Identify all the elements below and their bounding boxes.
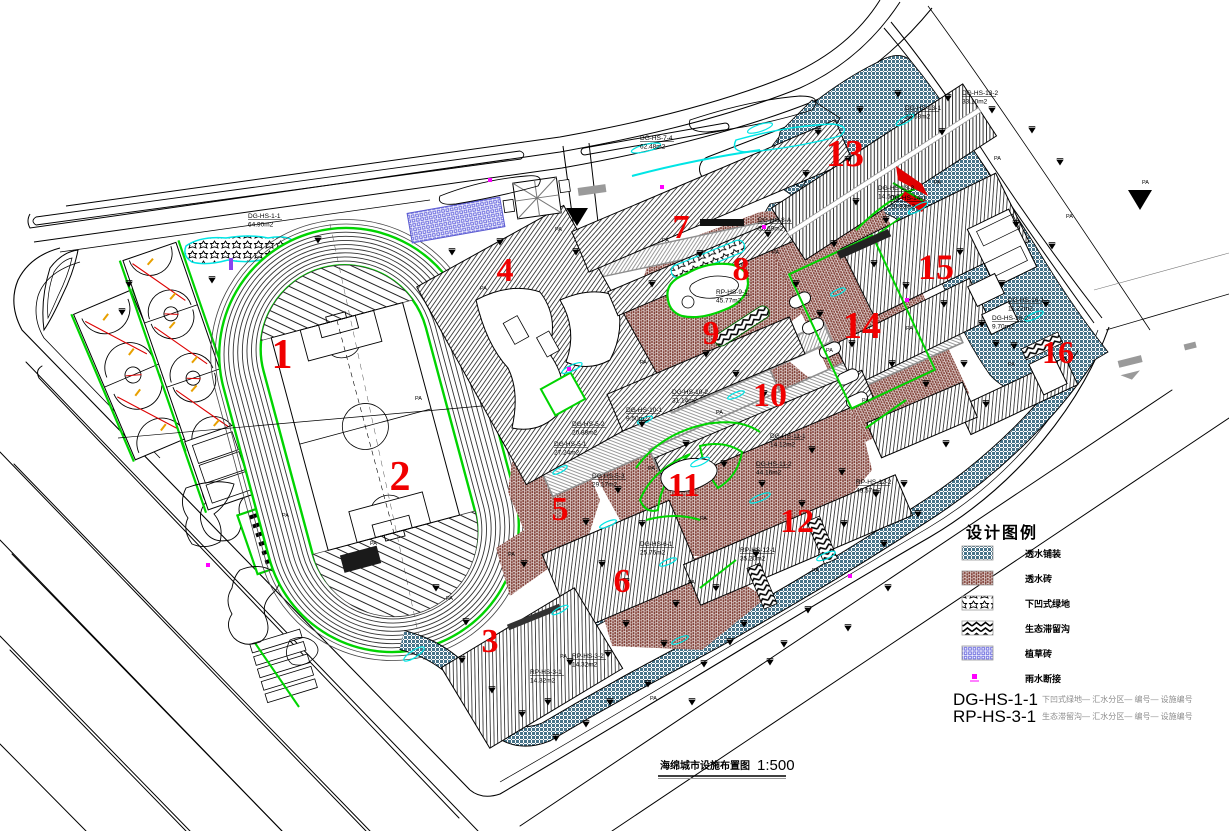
svg-text:9.70m2: 9.70m2 [992, 324, 1014, 331]
svg-text:DG-HS-13-3: DG-HS-13-3 [878, 185, 915, 192]
svg-text:植草砖: 植草砖 [1024, 648, 1052, 659]
svg-text:DG-HS-6-1: DG-HS-6-1 [640, 541, 673, 548]
svg-text:3: 3 [482, 623, 499, 660]
svg-text:8: 8 [733, 251, 750, 288]
svg-text:49.57m2: 49.57m2 [856, 488, 882, 495]
svg-text:PA: PA [716, 410, 723, 416]
svg-text:RP-HS-12-1: RP-HS-12-1 [740, 547, 776, 554]
svg-text:33.69m2: 33.69m2 [758, 226, 784, 233]
svg-text:PA: PA [560, 654, 567, 660]
svg-text:RP-HS-12-2: RP-HS-12-2 [856, 479, 892, 486]
svg-text:PA: PA [662, 238, 669, 244]
svg-text:DG-HS-11-2: DG-HS-11-2 [756, 461, 792, 468]
svg-text:RP-HS-3-1: RP-HS-3-1 [530, 669, 562, 676]
svg-text:29.17m2: 29.17m2 [592, 482, 618, 489]
svg-text:PA: PA [1008, 362, 1015, 368]
svg-text:PA: PA [812, 568, 819, 574]
svg-text:RP-HS-3-2: RP-HS-3-2 [572, 653, 604, 660]
svg-text:PA: PA [826, 348, 833, 354]
svg-text:25.76m2: 25.76m2 [640, 550, 666, 557]
svg-text:14.12m2: 14.12m2 [770, 442, 796, 449]
svg-text:PA: PA [906, 326, 913, 332]
svg-text:32.68m2: 32.68m2 [905, 114, 931, 121]
svg-text:62.48m2: 62.48m2 [640, 144, 666, 151]
svg-text:35.20m2: 35.20m2 [740, 556, 766, 563]
svg-text:PA: PA [700, 516, 707, 522]
svg-text:14.32m2: 14.32m2 [572, 662, 598, 669]
svg-text:27.24m2: 27.24m2 [554, 450, 580, 457]
svg-text:DG-HS-10-1: DG-HS-10-1 [626, 407, 663, 414]
svg-text:透水砖: 透水砖 [1025, 573, 1052, 584]
svg-text:1: 1 [272, 332, 293, 378]
svg-text:DG-HS-8-A: DG-HS-8-A [758, 217, 792, 224]
svg-text:DG-HS-10-2: DG-HS-10-2 [672, 389, 709, 396]
svg-text:DG-HS-16-2: DG-HS-16-2 [992, 315, 1029, 322]
svg-text:PA: PA [1142, 180, 1149, 186]
svg-text:PA: PA [370, 541, 377, 547]
svg-text:PA: PA [508, 552, 515, 558]
svg-text:下凹式绿地: 下凹式绿地 [1025, 598, 1070, 609]
svg-text:11.22m2: 11.22m2 [1008, 306, 1033, 313]
svg-text:PA: PA [1066, 214, 1073, 220]
svg-text:DG-HS-7-4: DG-HS-7-4 [640, 135, 673, 142]
svg-text:PA: PA [640, 360, 647, 366]
svg-text:DG-HS-5-1: DG-HS-5-1 [554, 441, 587, 448]
svg-text:45.77m2: 45.77m2 [716, 298, 742, 305]
svg-text:下凹式绿地— 汇水分区— 编号— 设施编号: 下凹式绿地— 汇水分区— 编号— 设施编号 [1042, 694, 1193, 704]
svg-text:14: 14 [843, 305, 881, 347]
svg-text:雨水断接: 雨水断接 [1025, 673, 1061, 684]
svg-text:33.10m2: 33.10m2 [962, 99, 988, 106]
svg-text:PA: PA [648, 466, 655, 472]
svg-text:DG-HS-16-1: DG-HS-16-1 [1008, 297, 1045, 304]
svg-text:生态滞留沟: 生态滞留沟 [1025, 623, 1070, 634]
svg-text:1:500: 1:500 [757, 757, 795, 774]
svg-text:11: 11 [668, 467, 700, 504]
svg-text:透水铺装: 透水铺装 [1025, 548, 1062, 559]
svg-text:13: 13 [826, 133, 864, 175]
svg-text:DG-HS-13-2: DG-HS-13-2 [962, 90, 999, 97]
svg-text:PA: PA [555, 227, 562, 233]
svg-text:16: 16 [1042, 334, 1074, 370]
svg-text:DG-HS-5-2: DG-HS-5-2 [572, 421, 605, 428]
svg-text:海绵城市设施布置图: 海绵城市设施布置图 [660, 759, 750, 772]
svg-text:DG-HS-5-3: DG-HS-5-3 [592, 473, 625, 480]
svg-text:10: 10 [753, 377, 787, 414]
svg-text:64.90m2: 64.90m2 [248, 222, 274, 229]
svg-text:设计图例: 设计图例 [966, 523, 1038, 542]
svg-text:DG-HS-1-1: DG-HS-1-1 [248, 213, 281, 220]
svg-text:9: 9 [703, 315, 720, 352]
svg-text:44.16m2: 44.16m2 [756, 470, 782, 477]
svg-text:2: 2 [390, 454, 411, 500]
svg-text:PA: PA [650, 696, 657, 702]
svg-text:PA: PA [772, 250, 779, 256]
svg-text:PA: PA [934, 180, 941, 186]
svg-text:14.5m2: 14.5m2 [878, 194, 900, 201]
svg-text:14.32m2: 14.32m2 [530, 678, 556, 685]
svg-text:4: 4 [497, 252, 514, 289]
svg-text:RP-HS-9-1: RP-HS-9-1 [716, 289, 748, 296]
svg-text:生态滞留沟— 汇水分区— 编号— 设施编号: 生态滞留沟— 汇水分区— 编号— 设施编号 [1042, 711, 1193, 721]
svg-text:DG-HS-11-1: DG-HS-11-1 [770, 433, 806, 440]
svg-text:PA: PA [862, 398, 869, 404]
svg-text:PA: PA [415, 396, 422, 402]
svg-text:DG-HS-13-1: DG-HS-13-1 [905, 105, 942, 112]
svg-text:PA: PA [282, 513, 289, 519]
svg-text:31.14m2: 31.14m2 [672, 398, 698, 405]
svg-text:PA: PA [994, 156, 1001, 162]
svg-text:PA: PA [688, 580, 695, 586]
svg-text:PA: PA [446, 596, 453, 602]
svg-text:20.88m2: 20.88m2 [572, 430, 598, 437]
svg-text:PA: PA [480, 286, 487, 292]
svg-text:5: 5 [552, 491, 569, 528]
svg-text:10.93m2: 10.93m2 [890, 204, 916, 211]
svg-text:12: 12 [780, 503, 814, 540]
svg-text:RP-HS-3-1: RP-HS-3-1 [953, 707, 1036, 726]
svg-text:7: 7 [673, 209, 690, 246]
svg-text:15: 15 [918, 247, 954, 287]
svg-text:9.50m2: 9.50m2 [626, 416, 648, 423]
svg-text:6: 6 [614, 563, 631, 600]
